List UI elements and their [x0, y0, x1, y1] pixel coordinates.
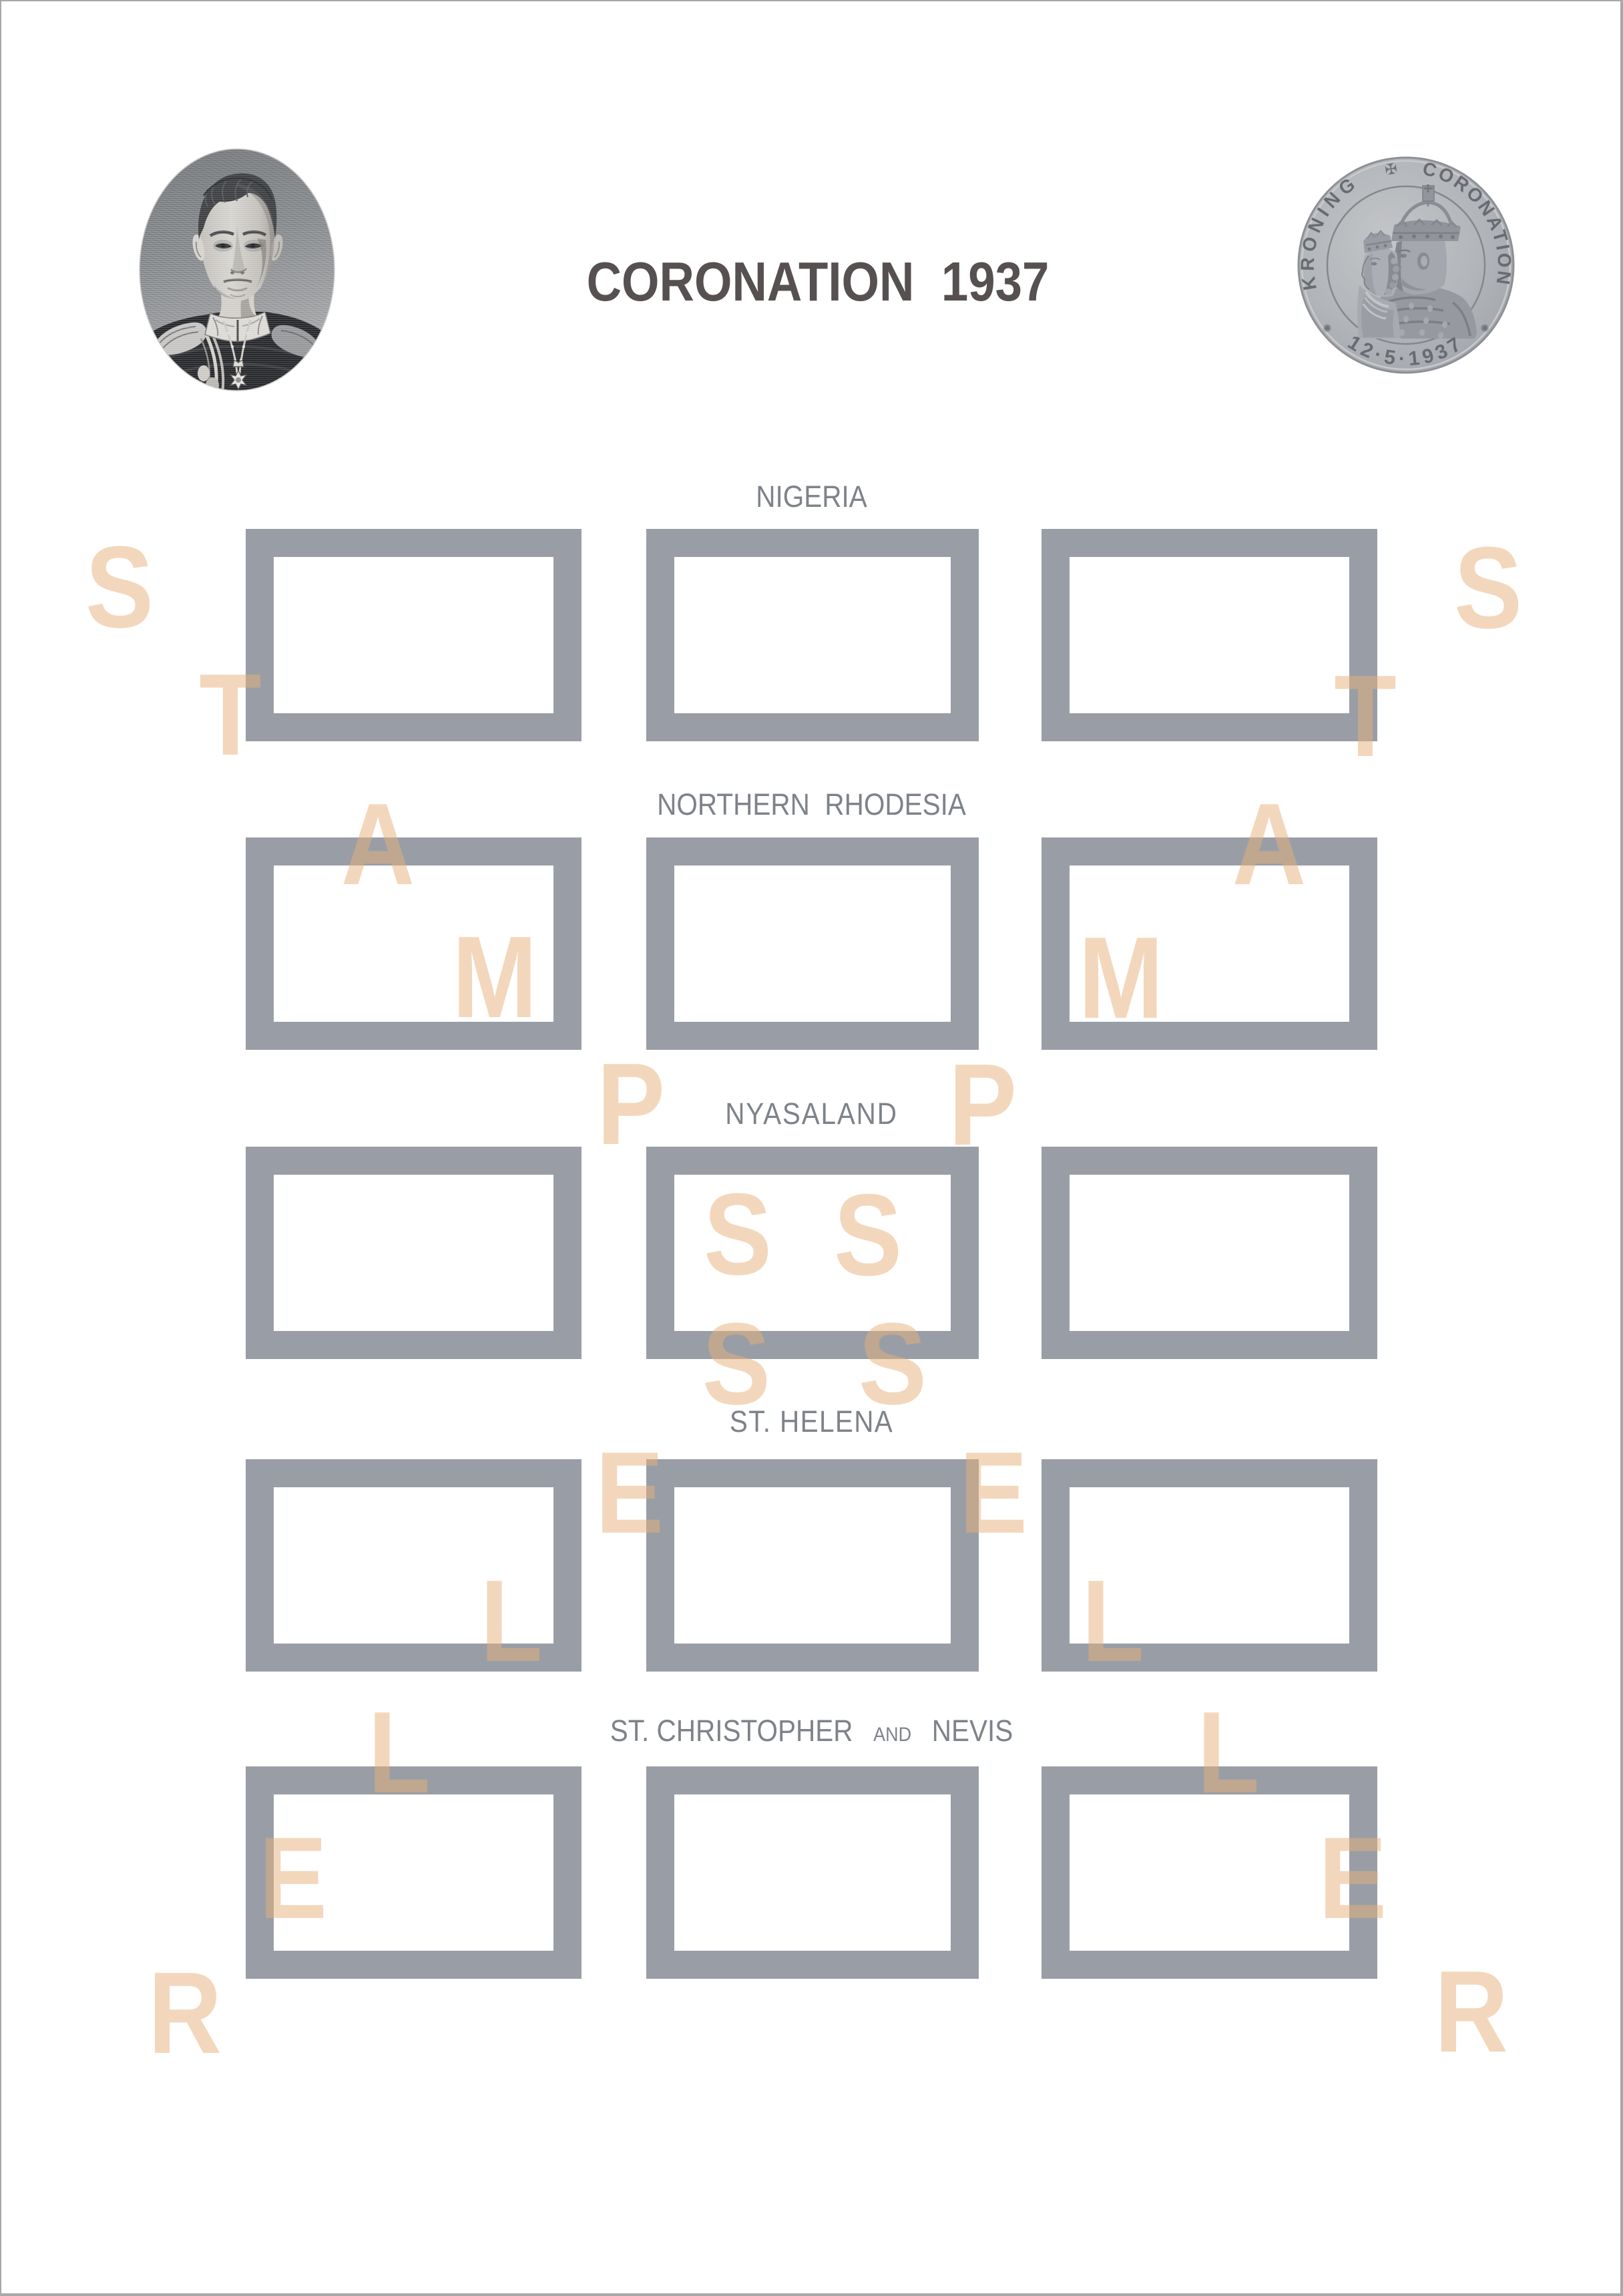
svg-text:T: T — [1334, 651, 1397, 781]
svg-text:A: A — [341, 779, 415, 909]
svg-text:S: S — [1454, 523, 1522, 652]
svg-text:S: S — [859, 1299, 927, 1428]
svg-text:E: E — [596, 1428, 664, 1557]
svg-text:M: M — [452, 912, 537, 1042]
svg-text:L: L — [1197, 1688, 1260, 1817]
svg-text:E: E — [1319, 1813, 1387, 1943]
svg-text:M: M — [1078, 913, 1164, 1042]
svg-text:L: L — [368, 1688, 431, 1817]
svg-text:E: E — [259, 1813, 327, 1943]
svg-text:L: L — [1082, 1556, 1144, 1686]
svg-text:A: A — [1232, 779, 1307, 909]
svg-text:E: E — [959, 1428, 1027, 1557]
svg-text:S: S — [702, 1299, 770, 1428]
svg-text:P: P — [597, 1039, 665, 1169]
svg-text:R: R — [1435, 1947, 1509, 2076]
svg-text:R: R — [148, 1948, 222, 2078]
svg-text:L: L — [480, 1556, 543, 1686]
svg-text:S: S — [834, 1170, 902, 1300]
svg-text:P: P — [949, 1040, 1017, 1169]
svg-text:S: S — [85, 522, 154, 652]
svg-text:T: T — [199, 650, 262, 779]
svg-text:S: S — [704, 1169, 772, 1299]
